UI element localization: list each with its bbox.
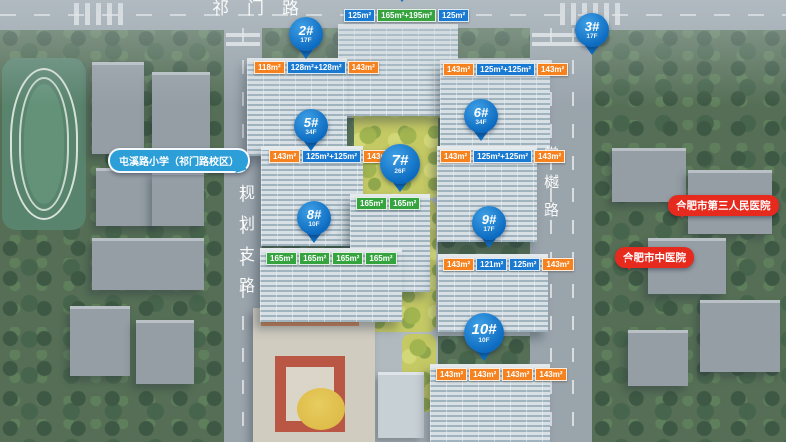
building-pin-6[interactable]: 6#34F	[464, 99, 498, 133]
estate-planting	[458, 28, 530, 58]
area-tag: 165m²	[266, 252, 297, 265]
school-running-track	[2, 58, 86, 230]
pin-head: 9#17F	[472, 206, 506, 240]
playground	[297, 388, 345, 430]
crosswalk-top-left	[74, 3, 126, 25]
pin-floor-count: 34F	[305, 129, 316, 136]
area-tag: 165m²+195m²	[377, 9, 436, 22]
poi-bubble-hospital-tcm[interactable]: 合肥市中医院	[615, 247, 694, 268]
pin-building-number: 10#	[471, 323, 496, 337]
pin-building-number: 5#	[304, 117, 318, 129]
area-tag: 165m²	[365, 252, 396, 265]
building-pin-3[interactable]: 3#17F	[575, 13, 609, 47]
area-tag: 125m²	[344, 9, 375, 22]
area-tag: 165m²	[299, 252, 330, 265]
building-pin-2[interactable]: 2#17F	[289, 17, 323, 51]
neighbor-building	[136, 320, 194, 384]
area-tag: 143m²	[469, 368, 500, 381]
area-tag: 143m²	[535, 368, 566, 381]
pin-building-number: 3#	[585, 21, 599, 33]
area-tag: 143m²	[436, 368, 467, 381]
pin-head: 10#10F	[464, 313, 504, 353]
pin-head: 6#34F	[464, 99, 498, 133]
pin-floor-count: 17F	[586, 33, 597, 40]
crosswalk-left-road	[226, 32, 260, 46]
hospital-building	[700, 300, 780, 372]
neighbor-building	[70, 306, 130, 376]
area-tag: 165m²	[332, 252, 363, 265]
area-tag-row-1: 125m²165m²+195m²125m²	[344, 9, 469, 22]
poi-bubble-school[interactable]: 屯溪路小学（祁门路校区）	[108, 148, 250, 173]
area-tag: 125m²+125m²	[302, 150, 361, 163]
pin-floor-count: 17F	[300, 37, 311, 44]
area-tag: 143m²	[542, 258, 573, 271]
building-pin-7[interactable]: 7#26F	[380, 144, 420, 184]
pin-head: 5#34F	[294, 109, 328, 143]
school-building	[152, 172, 204, 226]
pin-head: 8#10F	[297, 201, 331, 235]
area-tag: 143m²	[534, 150, 565, 163]
pin-floor-count: 26F	[394, 168, 405, 175]
area-tag-row-7: 165m²165m²	[356, 197, 420, 210]
area-tag-row-2: 118m²128m²+128m²143m²	[254, 61, 379, 74]
building-pin-10[interactable]: 10#10F	[464, 313, 504, 353]
masterplan-render: 祁门路 规划支路 棠樾路 2#17F3#17F5#34F6#34F7#26F8#…	[0, 0, 786, 442]
kindergarten	[253, 308, 375, 442]
area-tag-row-5: 143m²125m²+125m²143m²	[269, 150, 394, 163]
hospital-building	[628, 330, 688, 386]
pin-building-number: 7#	[392, 154, 409, 168]
poi-bubble-hospital-3rd[interactable]: 合肥市第三人民医院	[668, 195, 779, 216]
school-building	[96, 168, 160, 226]
area-tag: 143m²	[443, 63, 474, 76]
area-tag: 143m²	[502, 368, 533, 381]
building-pin-5[interactable]: 5#34F	[294, 109, 328, 143]
area-tag: 143m²	[440, 150, 471, 163]
pin-building-number: 9#	[482, 214, 496, 226]
pin-floor-count: 34F	[475, 119, 486, 126]
area-tag: 125m²+125m²	[476, 63, 535, 76]
pin-floor-count: 10F	[308, 221, 319, 228]
pin-head: 2#17F	[289, 17, 323, 51]
area-tag: 165m²	[356, 197, 387, 210]
pin-building-number: 6#	[474, 107, 488, 119]
area-tag: 165m²	[389, 197, 420, 210]
school-building	[92, 62, 144, 154]
right-tree-zone	[592, 28, 786, 442]
hospital-building	[612, 148, 686, 202]
pin-building-number: 2#	[299, 25, 313, 37]
area-tag: 128m²+128m²	[287, 61, 346, 74]
area-tag: 125m²	[438, 9, 469, 22]
building-pin-8[interactable]: 8#10F	[297, 201, 331, 235]
area-tag-row-10: 143m²143m²143m²143m²	[436, 368, 567, 381]
area-tag: 125m²+125m²	[473, 150, 532, 163]
pin-floor-count: 10F	[478, 337, 489, 344]
area-tag: 143m²	[443, 258, 474, 271]
area-tag: 118m²	[254, 61, 285, 74]
pin-head: 7#26F	[380, 144, 420, 184]
school-building	[152, 72, 210, 156]
building-pin-9[interactable]: 9#17F	[472, 206, 506, 240]
pin-building-number: 8#	[307, 209, 321, 221]
area-tag: 121m²	[476, 258, 507, 271]
pin-floor-count: 17F	[483, 226, 494, 233]
amenity-building	[378, 372, 424, 438]
area-tag: 143m²	[537, 63, 568, 76]
pin-head: 3#17F	[575, 13, 609, 47]
area-tag-row-6: 143m²125m²+125m²143m²	[440, 150, 565, 163]
area-tag-row-3: 143m²125m²+125m²143m²	[443, 63, 568, 76]
road-label-guihua-zhilu: 规划支路	[232, 184, 256, 308]
school-building	[92, 238, 204, 290]
area-tag: 143m²	[348, 61, 379, 74]
area-tag-row-8: 165m²165m²165m²165m²	[266, 252, 397, 265]
area-tag-row-9: 143m²121m²125m²143m²	[443, 258, 574, 271]
area-tag: 125m²	[509, 258, 540, 271]
area-tag: 143m²	[269, 150, 300, 163]
